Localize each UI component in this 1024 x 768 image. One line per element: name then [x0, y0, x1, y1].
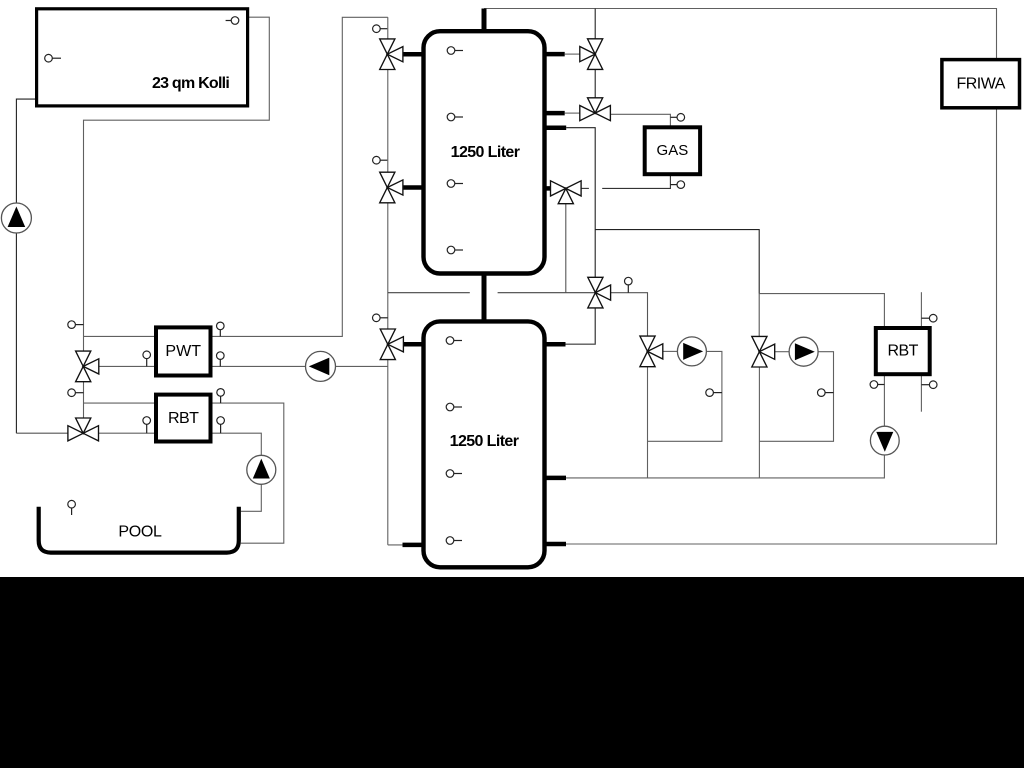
svg-text:1250 Liter: 1250 Liter [450, 433, 519, 450]
svg-text:PWT: PWT [165, 343, 201, 360]
svg-text:23 qm Kolli: 23 qm Kolli [152, 75, 229, 92]
svg-text:RBT: RBT [887, 343, 918, 360]
svg-text:FRIWA: FRIWA [956, 76, 1005, 93]
svg-text:GAS: GAS [657, 142, 689, 159]
svg-text:RBT: RBT [168, 410, 199, 427]
svg-text:POOL: POOL [118, 524, 162, 541]
svg-text:1250 Liter: 1250 Liter [451, 144, 520, 161]
